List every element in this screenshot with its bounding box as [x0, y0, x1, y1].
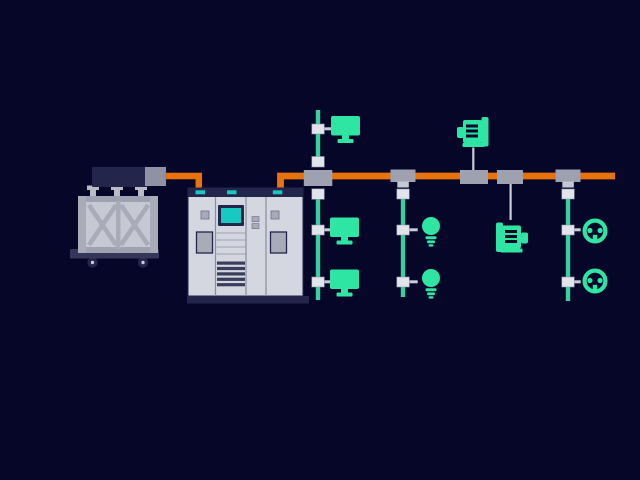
bus-junction-block: [460, 170, 488, 184]
tank-right-cap: [150, 196, 158, 253]
motor-drop-line: [472, 148, 474, 171]
branch-stub: [574, 228, 581, 231]
panel-button: [271, 211, 279, 219]
wheel-hub: [91, 261, 94, 264]
branch-connector: [312, 124, 325, 134]
hmi-screen: [221, 208, 241, 223]
transformer-top-box: [92, 167, 148, 187]
tank-left-cap: [78, 196, 86, 253]
status-light: [227, 190, 237, 194]
status-light: [196, 190, 206, 194]
hv-terminal-box: [145, 167, 166, 186]
bulb-icon: [422, 217, 440, 247]
bulb-icon: [422, 269, 440, 299]
status-light: [273, 190, 283, 194]
loads: [330, 116, 605, 299]
branch-connector: [312, 225, 325, 235]
junction-clamp: [562, 189, 575, 199]
junction-clamp: [397, 189, 410, 199]
bus-junction-cross: [304, 170, 333, 186]
outlet-icon: [585, 271, 606, 292]
branch-connector: [562, 225, 575, 235]
branch-stub: [409, 228, 418, 231]
monitor-icon: [331, 116, 360, 143]
tank-center-rib: [116, 201, 121, 249]
panel-button: [252, 224, 259, 229]
branch-stub: [574, 280, 581, 283]
branch-connector: [562, 277, 575, 287]
branch-stub: [324, 127, 332, 130]
monitor-icon: [330, 218, 359, 245]
junction-tab: [562, 182, 574, 188]
cabinet-top-band: [188, 188, 303, 197]
panel-button: [252, 217, 259, 222]
illustration-canvas: [0, 0, 640, 480]
branch-stub: [409, 280, 418, 283]
branch-connector: [312, 277, 325, 287]
power-distribution-diagram: [0, 0, 640, 480]
bus-junction-tee: [556, 170, 581, 183]
junction-tab: [397, 182, 409, 188]
hv-cable: [165, 176, 199, 189]
switchgear-cabinet: [187, 188, 309, 304]
monitor-icon: [330, 270, 359, 297]
junction-clamp: [312, 189, 325, 200]
motor-icon: [457, 117, 489, 147]
wheel-hub: [141, 261, 144, 264]
panel-button: [201, 211, 209, 219]
outlet-icon: [585, 221, 606, 242]
junction-clamp: [312, 157, 325, 168]
motor-icon: [496, 223, 528, 253]
branch-connector: [397, 277, 410, 287]
branch-connector: [397, 225, 410, 235]
cabinet-handle: [197, 232, 213, 253]
bus-junction-tee: [391, 170, 416, 183]
cabinet-handle: [271, 232, 287, 253]
cabinet-base: [187, 296, 309, 304]
motor-drop-line: [510, 184, 512, 220]
branch-connectors: [312, 124, 581, 287]
transformer: [70, 167, 166, 268]
bus-junction-block: [497, 170, 523, 184]
